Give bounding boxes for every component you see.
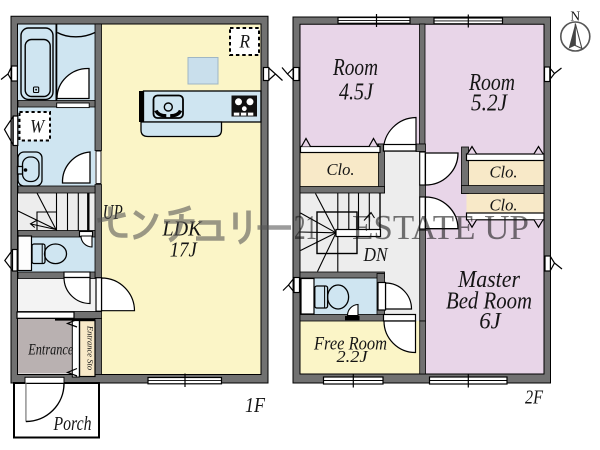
svg-text:DN: DN xyxy=(363,244,389,266)
svg-text:4.5J: 4.5J xyxy=(339,80,374,106)
svg-text:W: W xyxy=(30,117,46,138)
svg-text:5.2J: 5.2J xyxy=(471,91,508,117)
svg-text:ESTATE UP: ESTATE UP xyxy=(352,208,529,247)
svg-text:17J: 17J xyxy=(170,238,198,262)
svg-text:2F: 2F xyxy=(525,387,544,409)
svg-text:Room: Room xyxy=(332,55,378,81)
svg-text:Clo.: Clo. xyxy=(327,160,355,179)
svg-text:1F: 1F xyxy=(245,393,265,417)
svg-text:21: 21 xyxy=(294,208,317,247)
svg-text:Entrance: Entrance xyxy=(28,342,74,359)
svg-text:R: R xyxy=(239,31,251,52)
svg-text:Entrance Sto: Entrance Sto xyxy=(86,325,96,370)
svg-text:6J: 6J xyxy=(479,309,502,335)
svg-text:2.2J: 2.2J xyxy=(337,347,370,366)
svg-text:Porch: Porch xyxy=(53,413,92,435)
svg-text:Clo.: Clo. xyxy=(490,163,518,182)
